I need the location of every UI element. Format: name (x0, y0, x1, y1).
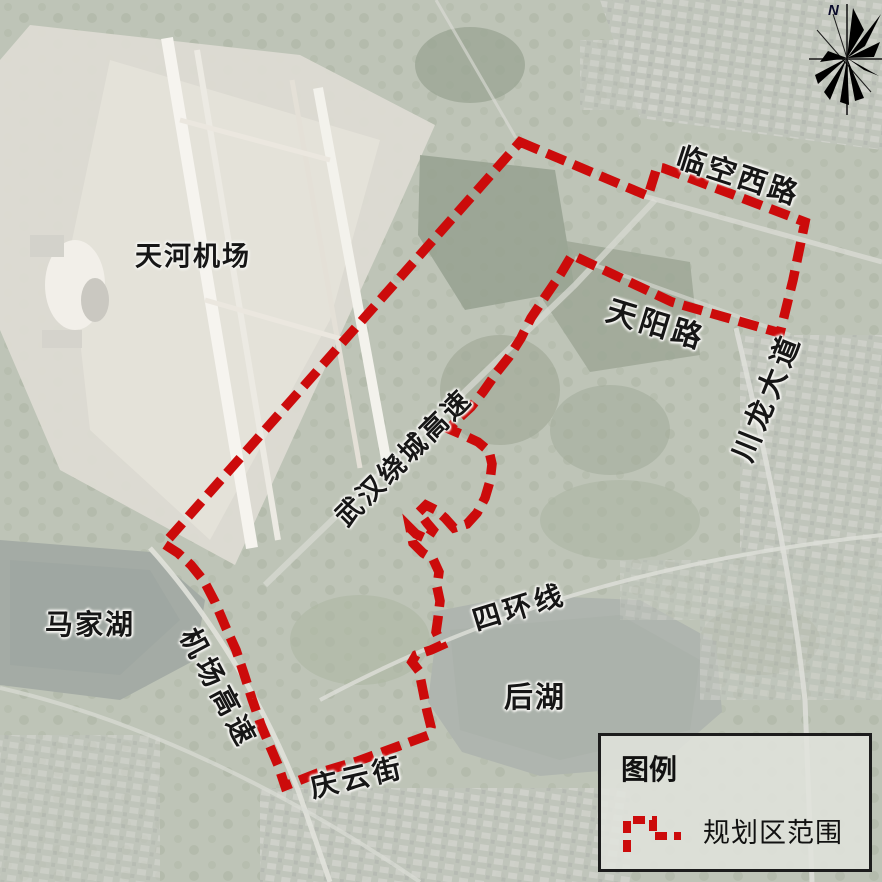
compass-rose: N (795, 0, 882, 125)
label-tianhe-airport: 天河机场 (135, 235, 251, 274)
red-dashed-boundary-icon (621, 804, 685, 856)
legend-box: 图例 规划区范围 (598, 733, 872, 872)
label-hou-lake: 后湖 (504, 674, 566, 716)
label-majia-lake: 马家湖 (45, 603, 135, 643)
planning-map: 天河机场 马家湖 后湖 武汉绕城高速 机场高速 四环线 庆云街 天阳路 川龙大道… (0, 0, 882, 882)
legend-item-label: 规划区范围 (703, 811, 843, 850)
compass-north-label: N (828, 2, 840, 19)
legend-item-planning-boundary: 规划区范围 (621, 804, 849, 856)
legend-title: 图例 (621, 748, 849, 788)
